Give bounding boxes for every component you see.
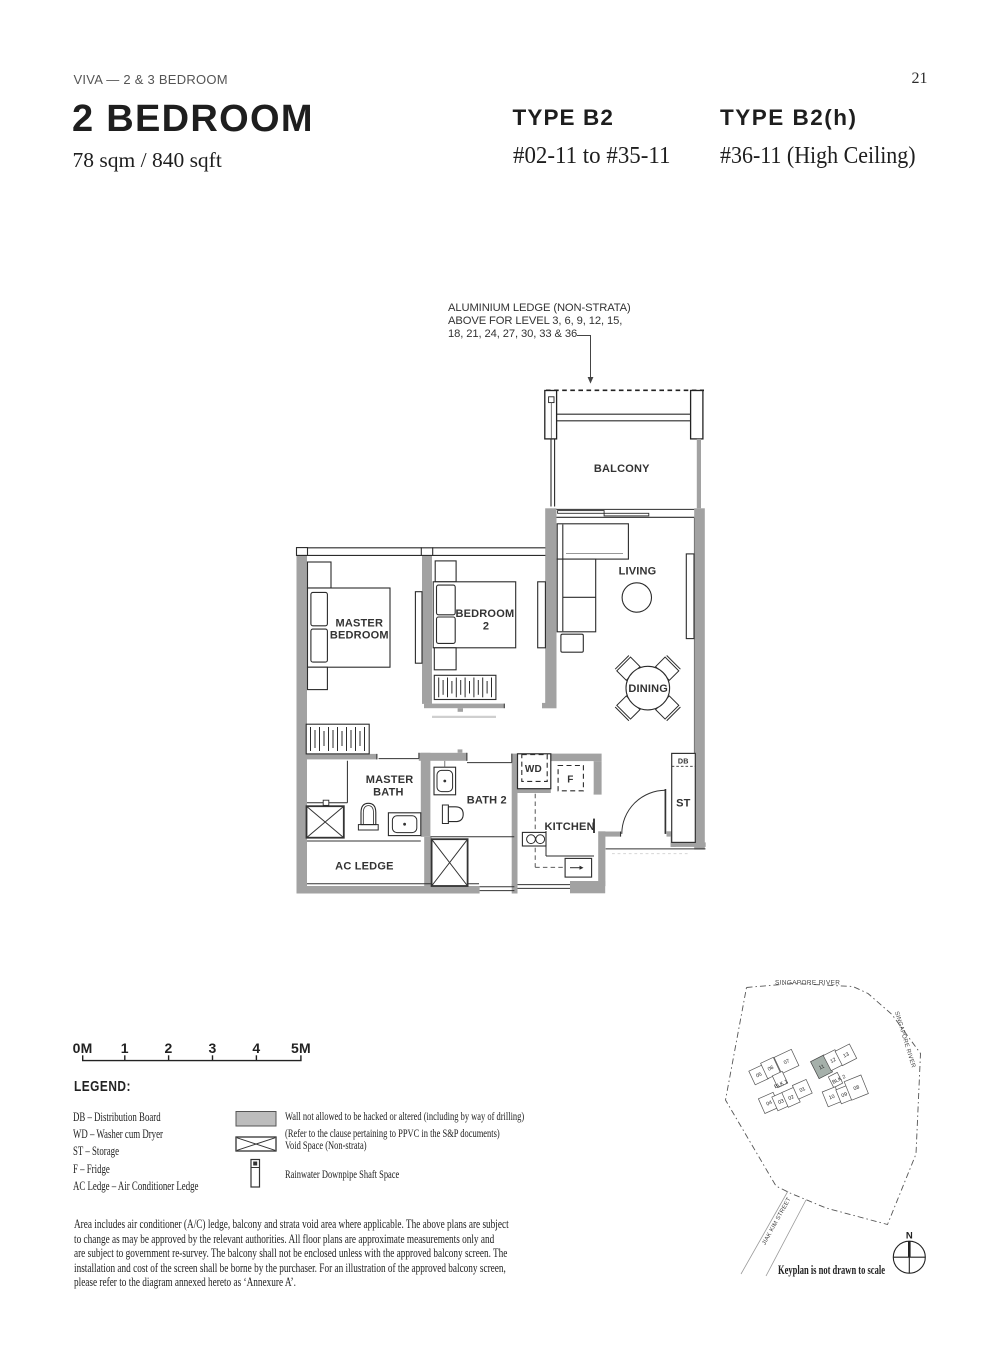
svg-text:MASTER: MASTER xyxy=(366,774,414,786)
svg-text:ST: ST xyxy=(676,798,691,810)
svg-text:1: 1 xyxy=(121,1040,129,1056)
svg-text:0M: 0M xyxy=(73,1040,93,1056)
svg-text:WD: WD xyxy=(525,764,542,775)
svg-text:KITCHEN: KITCHEN xyxy=(544,821,594,833)
svg-text:JIAK KIM STREET: JIAK KIM STREET xyxy=(762,1197,793,1247)
svg-text:SINGAPORE RIVER: SINGAPORE RIVER xyxy=(775,980,840,987)
svg-text:3: 3 xyxy=(208,1040,216,1056)
svg-text:AC LEDGE: AC LEDGE xyxy=(335,860,393,872)
svg-text:2: 2 xyxy=(483,621,489,633)
svg-text:2: 2 xyxy=(165,1040,173,1056)
svg-text:MASTER: MASTER xyxy=(335,617,383,629)
svg-text:N: N xyxy=(906,1231,913,1242)
svg-text:DB: DB xyxy=(678,756,689,765)
svg-text:4: 4 xyxy=(252,1040,260,1056)
svg-text:DINING: DINING xyxy=(628,683,668,695)
svg-text:BATH: BATH xyxy=(373,787,404,799)
svg-text:LIVING: LIVING xyxy=(619,566,657,578)
svg-text:BEDROOM: BEDROOM xyxy=(455,608,514,620)
svg-text:BALCONY: BALCONY xyxy=(594,463,650,475)
svg-text:BATH 2: BATH 2 xyxy=(467,794,507,806)
svg-text:F: F xyxy=(567,774,573,785)
svg-text:BEDROOM: BEDROOM xyxy=(330,630,389,642)
svg-text:SINGAPORE RIVER: SINGAPORE RIVER xyxy=(893,1011,916,1069)
svg-text:5M: 5M xyxy=(291,1040,311,1056)
